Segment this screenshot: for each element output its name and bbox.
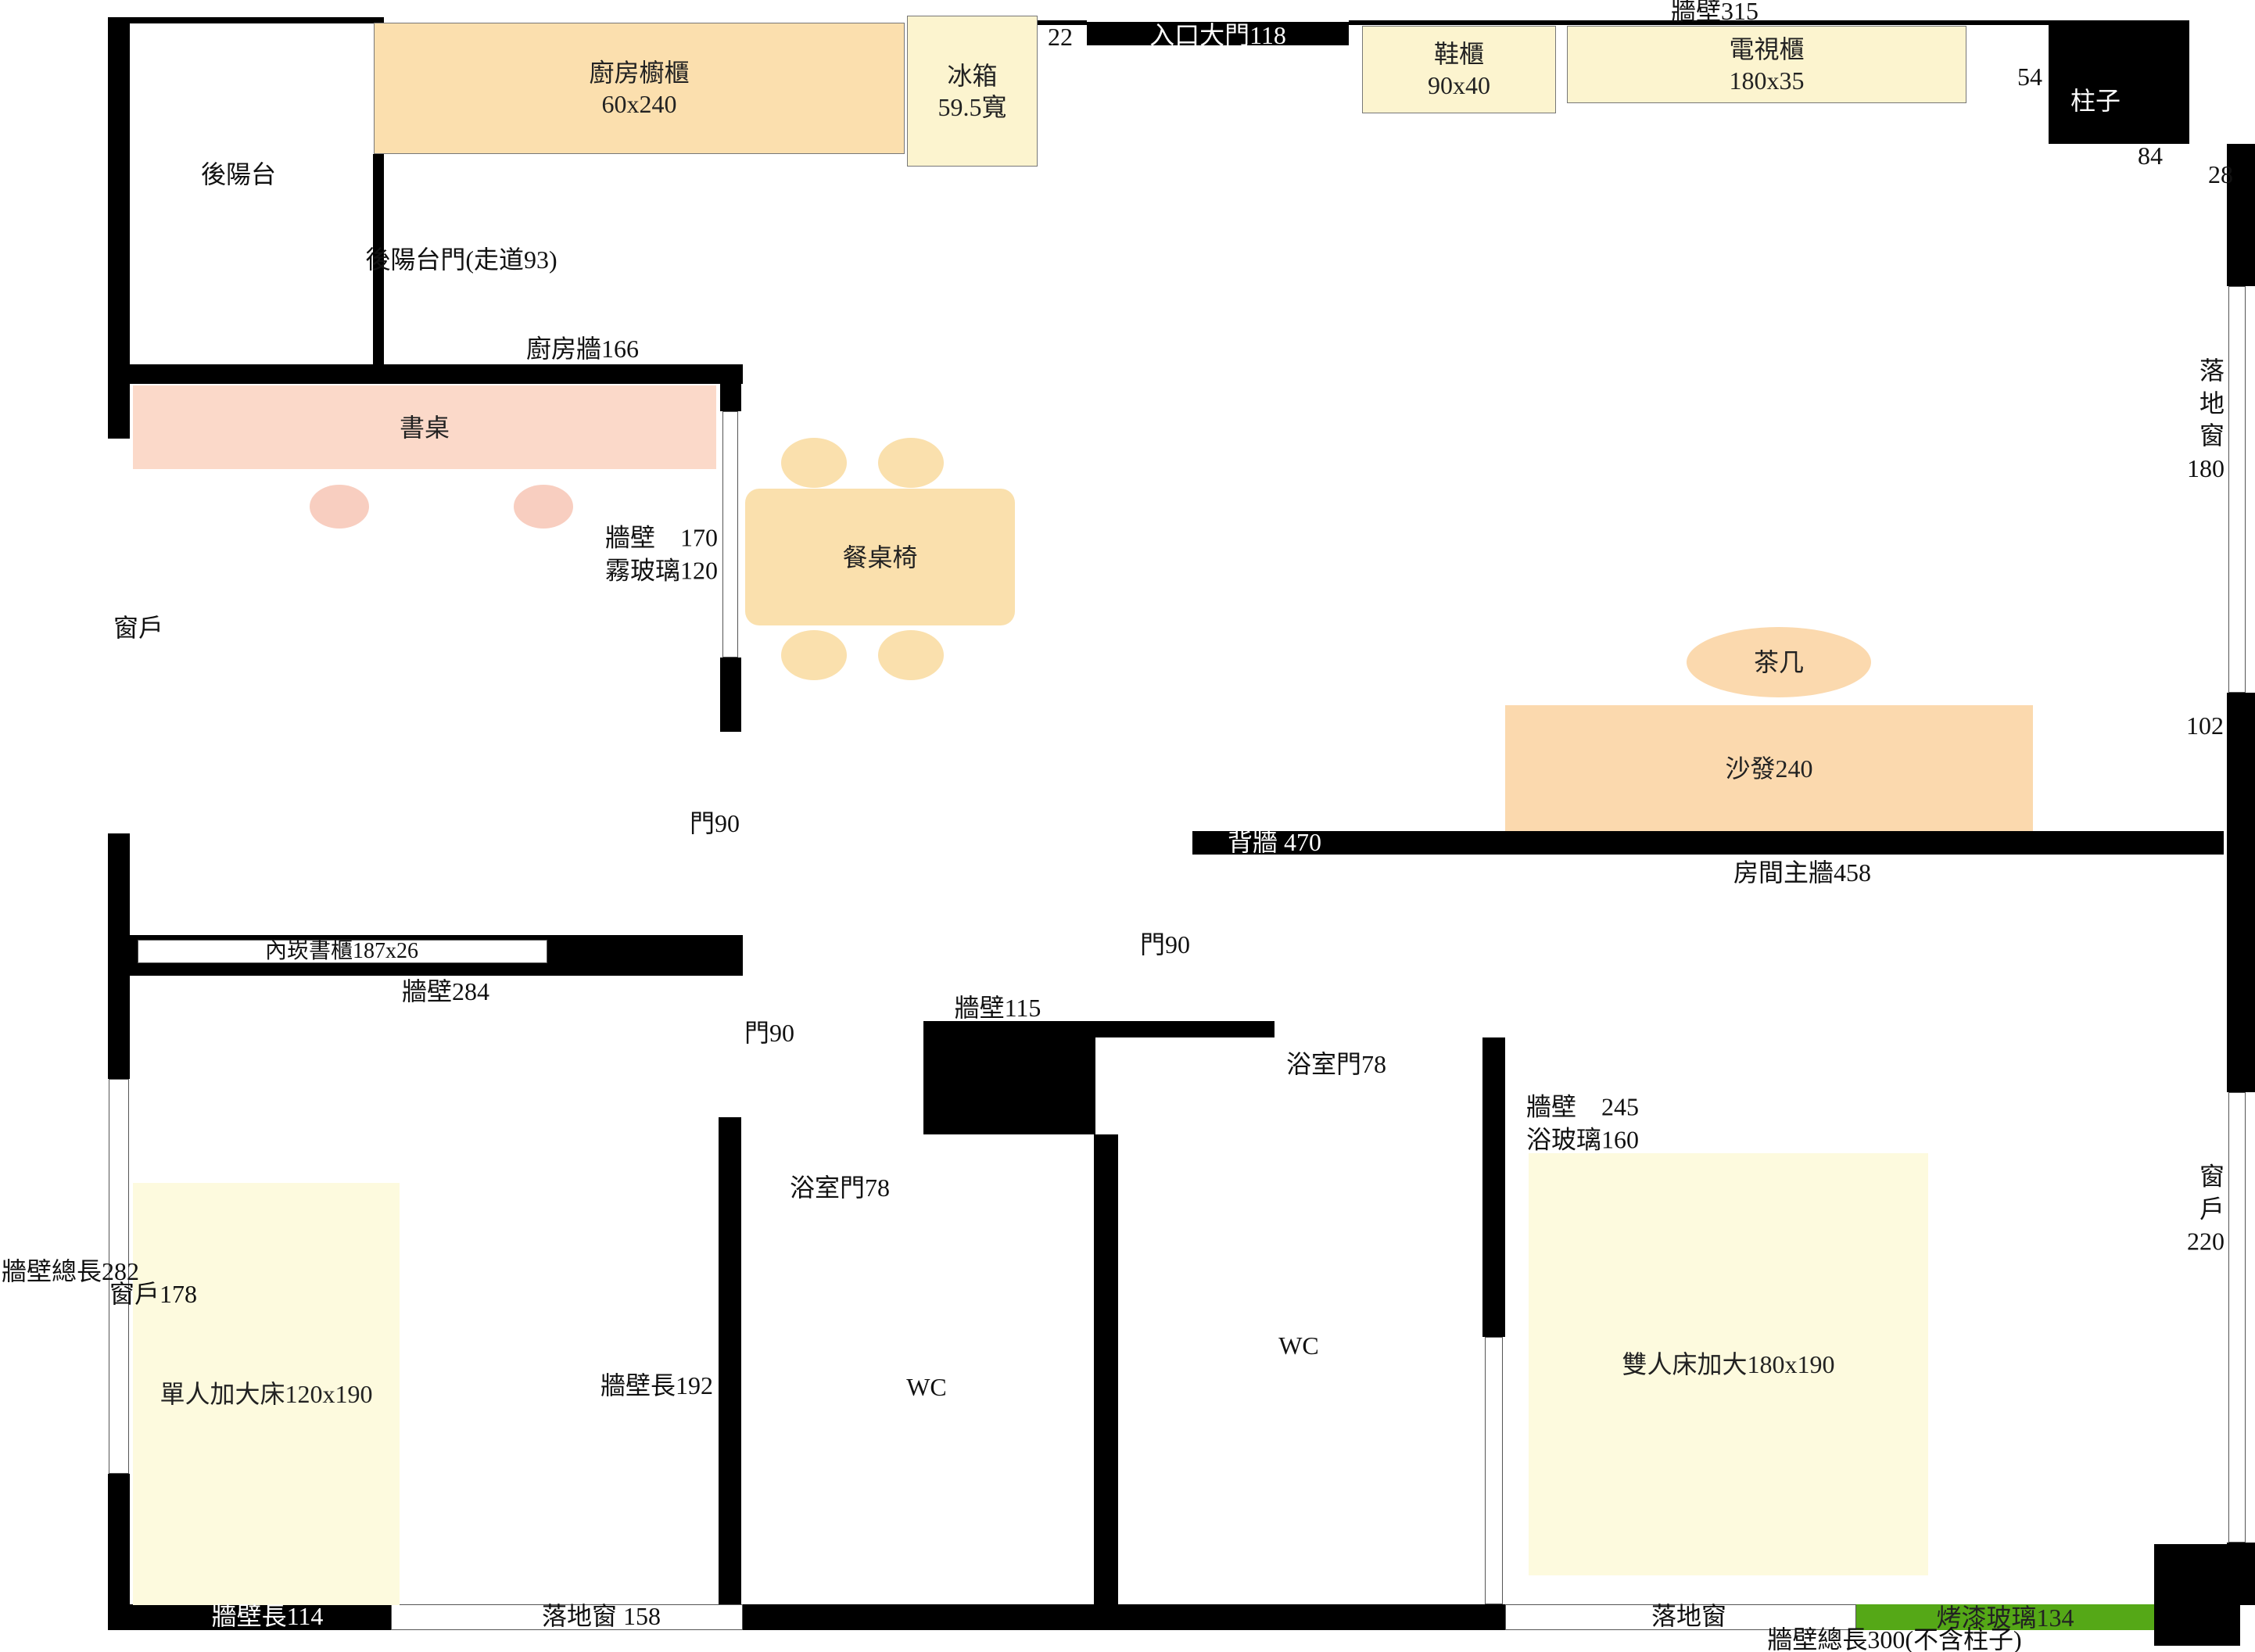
n22-label: 22: [1048, 21, 1073, 54]
wall192-label: 牆壁長192: [600, 1370, 713, 1403]
desk: 書桌: [133, 385, 716, 469]
back-wall-label: 背牆 470: [1228, 826, 1321, 859]
dining-table: 餐桌椅: [745, 489, 1015, 625]
wc2-right-wall: [1482, 1037, 1505, 1337]
dining-table-label: 餐桌椅: [842, 542, 917, 573]
kitchen-cabinet-label: 廚房櫥櫃 60x240: [589, 57, 689, 120]
coffee-table-label: 茶几: [1754, 647, 1804, 678]
wall115-label: 牆壁115: [955, 992, 1041, 1025]
right-window-220: [2228, 1092, 2246, 1543]
double-bed-label: 雙人床加大180x190: [1622, 1349, 1834, 1380]
floor-plan: 入口大門118 烤漆玻璃134 廚房櫥櫃 60x240 冰箱 59.5寬 鞋櫃 …: [0, 0, 2255, 1652]
balcony-top-wall: [108, 17, 384, 23]
partition-wall-upper: [720, 364, 741, 411]
door90-b-label: 門90: [1140, 929, 1190, 962]
wall114-label: 牆壁長114: [212, 1600, 324, 1633]
n102-label: 102: [2186, 710, 2224, 743]
entrance-door-label: 入口大門118: [1149, 16, 1286, 52]
wall245-glass-label: 牆壁 245 浴玻璃160: [1526, 1091, 1639, 1156]
single-bed-label: 單人加大床120x190: [160, 1378, 372, 1410]
floor-window-b-label: 落地窗: [1651, 1600, 1726, 1633]
dining-chair-1: [781, 438, 847, 488]
window178-label: 窗戶178: [109, 1278, 197, 1311]
pillar-top: [2049, 20, 2189, 144]
n54-label: 54: [2017, 61, 2042, 94]
balcony-label: 後陽台: [201, 159, 276, 192]
floor-window-158-label: 落地窗 158: [542, 1600, 661, 1633]
dining-chair-2: [878, 438, 944, 488]
fridge-label: 冰箱 59.5寬: [937, 60, 1006, 123]
window-left-label: 窗戶: [113, 612, 163, 645]
shoe-cabinet-label: 鞋櫃 90x40: [1428, 38, 1490, 101]
wall300-total-label: 牆壁總長300(不含柱子): [1767, 1624, 2021, 1652]
floor-window-180-label: 落地窗 180: [2187, 355, 2225, 485]
wall170-glass-label: 牆壁 170 霧玻璃120: [605, 521, 718, 586]
shoe-cabinet: 鞋櫃 90x40: [1362, 26, 1556, 113]
double-bed: 雙人床加大180x190: [1529, 1153, 1928, 1575]
coffee-table: 茶几: [1687, 627, 1871, 697]
sofa: 沙發240: [1505, 705, 2033, 831]
kitchen-wall-label: 廚房牆166: [526, 333, 639, 366]
sofa-label: 沙發240: [1725, 753, 1812, 784]
bottom-wall-mid: [743, 1604, 1505, 1630]
deskroom-top-wall: [108, 364, 743, 384]
bookcase-label: 內崁書櫃187x26: [265, 937, 418, 966]
wall315-label: 牆壁315: [1671, 0, 1758, 28]
n28-label: 28: [2208, 159, 2233, 192]
right-floor-window-180: [2228, 286, 2246, 693]
main-wall-label: 房間主牆458: [1733, 857, 1871, 890]
wc2-label: WC: [1278, 1330, 1319, 1363]
back-wall: [1192, 831, 2224, 855]
bath-block: [923, 1021, 1095, 1134]
bath-glass: [1485, 1337, 1503, 1604]
balcony-door-label: 後陽台門(走道93): [365, 244, 557, 277]
desk-chair-2: [514, 485, 573, 529]
entrance-door: 入口大門118: [1087, 22, 1349, 45]
wc-divider-wall: [1094, 1134, 1118, 1604]
wall284-label: 牆壁284: [402, 976, 489, 1009]
wc1-label: WC: [906, 1371, 947, 1404]
left-wall-mid: [108, 833, 130, 1079]
pillar-bottom: [2154, 1544, 2240, 1646]
kitchen-cabinet: 廚房櫥櫃 60x240: [374, 23, 905, 154]
bath-top-thin-wall: [1095, 1021, 1274, 1037]
tv-cabinet: 電視櫃 180x35: [1567, 26, 1966, 103]
pillar-label: 柱子: [2070, 85, 2121, 118]
window-220-label: 窗戶 220: [2187, 1161, 2225, 1259]
bath-door-b-label: 浴室門78: [1286, 1048, 1386, 1081]
partition-wall-lower: [720, 658, 741, 732]
desk-label: 書桌: [400, 412, 450, 443]
dining-chair-3: [781, 630, 847, 680]
dining-chair-4: [878, 630, 944, 680]
partition-frosted-glass: [722, 411, 738, 658]
wc1-left-wall: [719, 1117, 741, 1604]
n84-label: 84: [2138, 140, 2163, 173]
fridge: 冰箱 59.5寬: [907, 16, 1038, 167]
door90-a-label: 門90: [690, 808, 740, 840]
desk-chair-1: [310, 485, 369, 529]
single-bed: 單人加大床120x190: [133, 1183, 400, 1605]
door90-c-label: 門90: [744, 1017, 794, 1050]
right-wall-seg2: [2227, 693, 2255, 1092]
bath-door-a-label: 浴室門78: [790, 1172, 890, 1205]
tv-cabinet-label: 電視櫃 180x35: [1729, 34, 1804, 96]
